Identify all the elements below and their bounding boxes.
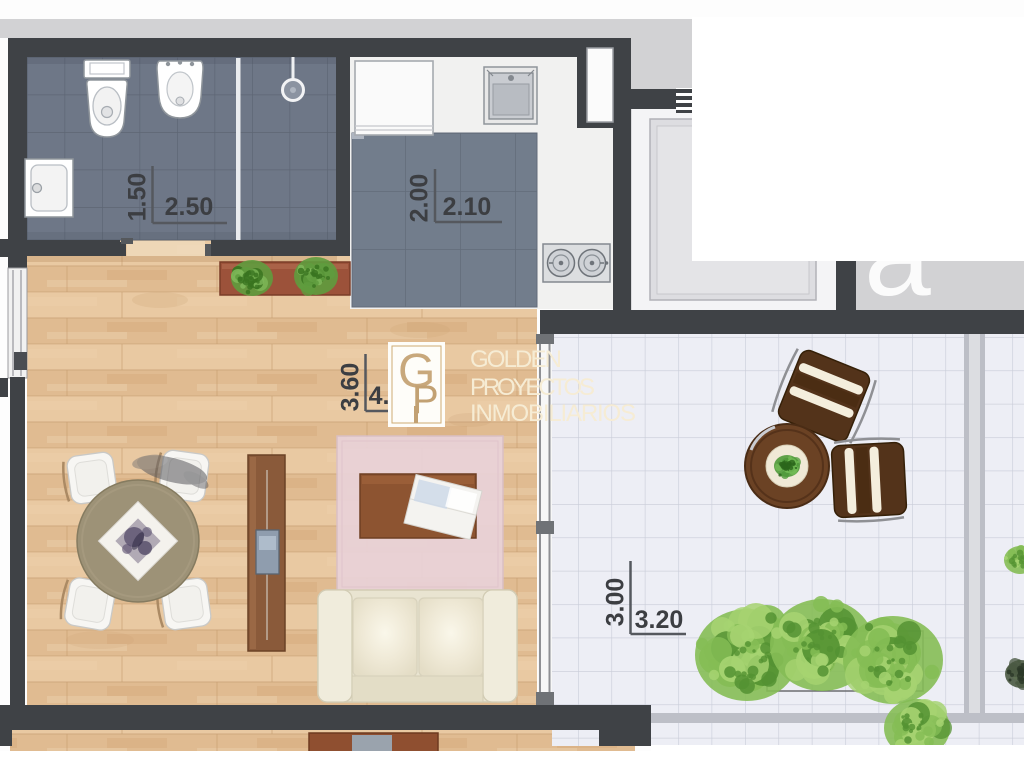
svg-text:1.50: 1.50 [124, 173, 152, 222]
svg-text:2.10: 2.10 [443, 193, 492, 221]
svg-text:2.00: 2.00 [406, 174, 434, 223]
svg-text:PROYECTOS: PROYECTOS [470, 374, 595, 401]
svg-text:2.50: 2.50 [165, 193, 214, 221]
svg-text:GOLDEN: GOLDEN [470, 346, 562, 373]
svg-text:3.60: 3.60 [337, 363, 365, 412]
svg-text:INMOBILIARIOS: INMOBILIARIOS [470, 400, 636, 427]
svg-text:3.00: 3.00 [602, 578, 630, 627]
svg-text:3.20: 3.20 [635, 606, 684, 634]
